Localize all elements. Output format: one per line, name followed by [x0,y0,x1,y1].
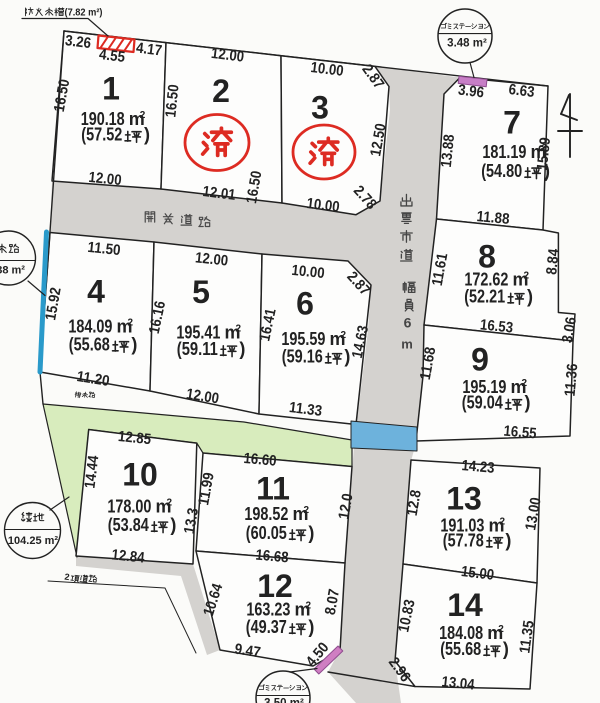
svg-text:11.50: 11.50 [87,239,122,259]
svg-text:9: 9 [471,341,489,377]
svg-text:2: 2 [167,498,173,509]
svg-text:11.88: 11.88 [476,208,510,228]
svg-text:11.36: 11.36 [562,363,582,397]
svg-text:): ) [131,334,137,354]
svg-text:3.50 m²: 3.50 m² [264,698,304,703]
svg-text:2: 2 [522,378,528,389]
svg-text:): ) [505,530,511,550]
svg-text:(60.05: (60.05 [246,523,287,543]
svg-text:10: 10 [122,456,158,492]
svg-text:2.38 m²: 2.38 m² [0,264,25,276]
svg-text:10.00: 10.00 [291,262,326,282]
svg-text:2: 2 [128,318,134,329]
svg-text:13.04: 13.04 [441,673,476,693]
svg-text:2: 2 [341,330,347,341]
svg-text:(57.78: (57.78 [443,530,484,550]
svg-text:): ) [503,639,509,659]
svg-text:5: 5 [192,274,210,310]
svg-text:184.09: 184.09 [68,316,112,336]
svg-text:4.55: 4.55 [98,46,126,66]
svg-text:16.55: 16.55 [503,423,537,443]
svg-text:m: m [401,336,413,351]
svg-text:3.96: 3.96 [457,81,485,101]
svg-text:): ) [525,392,531,412]
svg-text:2: 2 [500,517,506,528]
svg-text:2: 2 [304,505,310,516]
svg-text:(55.68: (55.68 [440,639,481,659]
svg-text:14: 14 [447,587,483,623]
svg-text:2: 2 [524,271,530,282]
svg-text:(54.80: (54.80 [481,161,522,181]
svg-text:(7.82 m²): (7.82 m²) [65,6,103,18]
svg-text:(52.21: (52.21 [464,286,505,306]
svg-text:3.48 m²: 3.48 m² [447,38,487,50]
svg-text:11: 11 [256,470,290,506]
svg-text:): ) [144,124,150,144]
svg-text:104.25 m²: 104.25 m² [8,535,58,547]
svg-text:12.85: 12.85 [117,428,152,448]
svg-text:16.53: 16.53 [479,316,514,336]
svg-text:2: 2 [140,110,146,121]
svg-text:): ) [308,523,314,543]
svg-text:178.00: 178.00 [107,496,151,516]
svg-text:13: 13 [446,480,482,516]
svg-text:(55.68: (55.68 [69,334,110,354]
svg-text:12.84: 12.84 [111,546,146,566]
svg-text:1: 1 [102,70,120,106]
svg-text:12.00: 12.00 [88,169,123,189]
svg-text:(59.16: (59.16 [282,346,323,366]
svg-text:2: 2 [236,324,242,335]
svg-text:198.52: 198.52 [244,504,288,524]
svg-text:16.68: 16.68 [255,547,289,567]
svg-text:): ) [170,515,176,535]
svg-text:(53.84: (53.84 [108,515,149,535]
svg-text:2: 2 [306,601,312,612]
svg-text:(59.11: (59.11 [177,339,218,359]
svg-text:16.50: 16.50 [162,84,182,119]
svg-text:(49.37: (49.37 [246,617,287,637]
svg-text:4: 4 [87,273,105,309]
svg-text:13.88: 13.88 [438,134,458,169]
svg-text:8.84: 8.84 [543,247,563,275]
svg-text:3.26: 3.26 [64,32,92,52]
svg-text:(57.52: (57.52 [81,124,122,144]
svg-text:16.60: 16.60 [243,450,277,470]
svg-text:181.19: 181.19 [482,142,526,162]
svg-text:): ) [527,286,533,306]
svg-text:(59.04: (59.04 [462,392,503,412]
svg-text:3: 3 [311,89,329,125]
svg-text:14.23: 14.23 [461,457,495,477]
svg-text:7: 7 [503,104,521,140]
svg-text:): ) [239,339,245,359]
svg-text:2: 2 [212,73,230,109]
svg-text:4.17: 4.17 [135,39,163,59]
svg-text:6: 6 [296,285,314,321]
svg-text:12.00: 12.00 [194,249,229,269]
svg-text:): ) [308,617,314,637]
svg-text:15.89: 15.89 [534,137,554,172]
svg-text:6: 6 [404,315,412,331]
svg-text:2: 2 [498,624,504,635]
svg-text:6.63: 6.63 [508,81,536,101]
